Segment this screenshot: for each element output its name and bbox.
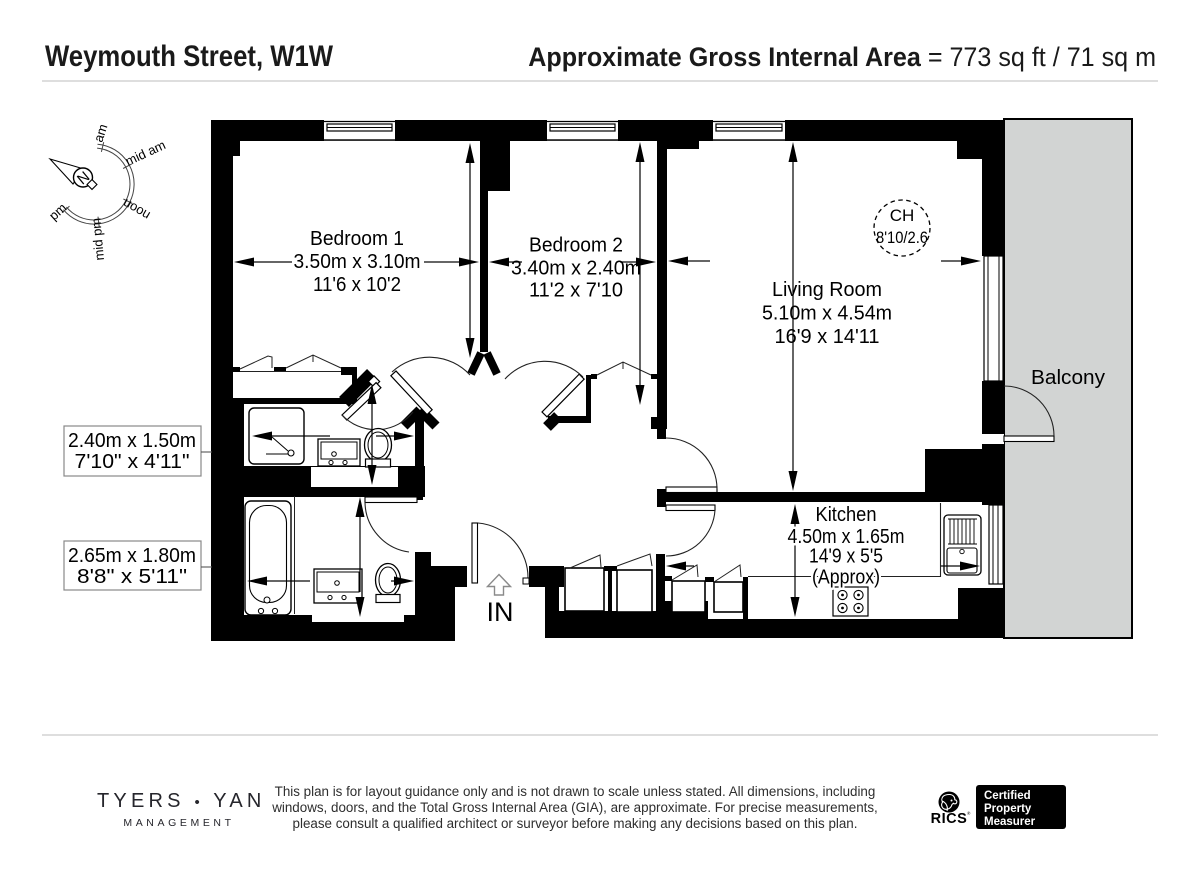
svg-text:Bedroom 1: Bedroom 1 [310, 227, 404, 250]
svg-text:pm: pm [46, 200, 69, 223]
svg-text:Kitchen: Kitchen [816, 503, 877, 526]
svg-text:3.50m x 3.10m: 3.50m x 3.10m [294, 250, 421, 273]
svg-text:16'9 x 14'11: 16'9 x 14'11 [775, 325, 880, 348]
svg-text:5.10m x 4.54m: 5.10m x 4.54m [762, 302, 892, 325]
svg-text:Living Room: Living Room [772, 278, 882, 301]
svg-text:7'10" x 4'11": 7'10" x 4'11" [75, 450, 190, 473]
svg-text:8'10/2.6: 8'10/2.6 [876, 229, 928, 247]
svg-text:CH: CH [890, 206, 915, 225]
svg-text:am: am [91, 122, 111, 144]
svg-text:(Approx): (Approx) [812, 566, 880, 589]
svg-text:14'9 x 5'5: 14'9 x 5'5 [809, 545, 883, 568]
svg-text:8'8" x 5'11": 8'8" x 5'11" [77, 565, 187, 588]
svg-text:Bedroom 2: Bedroom 2 [529, 234, 623, 257]
svg-text:IN: IN [487, 597, 514, 627]
svg-text:mid pm: mid pm [88, 217, 107, 261]
svg-text:11'2 x 7'10: 11'2 x 7'10 [529, 279, 623, 302]
svg-text:2.40m x 1.50m: 2.40m x 1.50m [68, 429, 196, 452]
svg-text:Balcony: Balcony [1031, 366, 1106, 389]
svg-text:2.65m x 1.80m: 2.65m x 1.80m [68, 544, 196, 567]
svg-text:11'6 x 10'2: 11'6 x 10'2 [313, 273, 401, 296]
svg-text:3.40m x 2.40m: 3.40m x 2.40m [511, 257, 641, 280]
svg-text:mid am: mid am [123, 137, 168, 169]
